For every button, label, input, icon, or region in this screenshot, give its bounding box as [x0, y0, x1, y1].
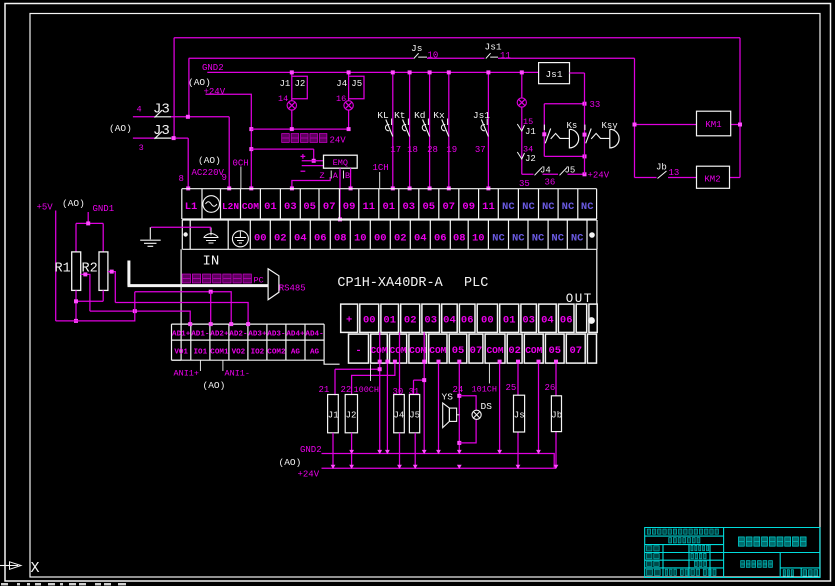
svg-text:+24V: +24V	[204, 87, 226, 97]
svg-text:Kx: Kx	[433, 110, 445, 121]
svg-text:NC: NC	[581, 201, 594, 213]
svg-text:NC: NC	[492, 233, 505, 245]
svg-text:09: 09	[343, 201, 356, 213]
svg-text:00: 00	[254, 233, 267, 245]
svg-text:J5: J5	[351, 79, 362, 89]
svg-text:04: 04	[414, 233, 427, 245]
svg-text:05: 05	[303, 201, 316, 213]
svg-text:AD3-: AD3-	[267, 331, 285, 339]
svg-text:DS: DS	[481, 401, 493, 412]
svg-text:10: 10	[428, 51, 439, 61]
svg-text:26: 26	[545, 383, 556, 393]
svg-text:101CH: 101CH	[472, 385, 498, 395]
svg-text:24: 24	[453, 385, 464, 395]
svg-text:31: 31	[409, 387, 420, 397]
svg-text:AG: AG	[310, 349, 320, 357]
svg-text:14: 14	[278, 94, 288, 104]
svg-text:10: 10	[354, 233, 367, 245]
svg-text:Jb: Jb	[551, 411, 562, 421]
svg-text:L2N: L2N	[222, 201, 239, 212]
svg-text:YS: YS	[442, 392, 454, 403]
svg-text:08: 08	[453, 233, 466, 245]
svg-text:J2: J2	[346, 411, 357, 421]
svg-text:11: 11	[500, 51, 511, 61]
svg-text:9: 9	[222, 173, 227, 183]
svg-text:NC: NC	[532, 233, 545, 245]
svg-text:Ksy: Ksy	[602, 121, 619, 131]
svg-text:35: 35	[519, 179, 530, 189]
svg-text:8: 8	[179, 174, 184, 184]
svg-text:03: 03	[522, 315, 535, 327]
svg-text:3: 3	[139, 143, 144, 153]
svg-text:Js1: Js1	[473, 110, 490, 121]
svg-text:NC: NC	[512, 233, 525, 245]
svg-text:05: 05	[422, 201, 435, 213]
svg-text:ANI1+: ANI1+	[174, 369, 200, 379]
svg-text:21: 21	[319, 385, 330, 395]
svg-text:J5: J5	[565, 166, 576, 176]
svg-text:100CH: 100CH	[354, 385, 380, 395]
svg-text:J4: J4	[394, 411, 405, 421]
svg-text:J1: J1	[280, 79, 291, 89]
svg-text:J5: J5	[409, 411, 420, 421]
svg-text:15: 15	[523, 117, 533, 127]
svg-text:Ks: Ks	[567, 121, 578, 131]
svg-text:COM: COM	[242, 201, 259, 212]
svg-text:01: 01	[382, 201, 395, 213]
svg-text:AD4-: AD4-	[305, 331, 323, 339]
svg-text:IO2: IO2	[251, 349, 265, 357]
svg-text:00: 00	[481, 315, 494, 327]
svg-text:A: A	[333, 171, 339, 181]
svg-text:33: 33	[590, 100, 601, 110]
svg-text:03: 03	[424, 315, 437, 327]
svg-text:03: 03	[284, 201, 297, 213]
svg-text:00: 00	[363, 315, 376, 327]
svg-text:AD2+: AD2+	[210, 331, 229, 339]
svg-text:11: 11	[482, 201, 495, 213]
svg-text:04: 04	[294, 233, 307, 245]
svg-text:AD2-: AD2-	[229, 331, 247, 339]
svg-text:04: 04	[541, 315, 554, 327]
svg-text:NC: NC	[502, 201, 515, 213]
svg-text:01: 01	[503, 315, 516, 327]
svg-text:(AO): (AO)	[62, 198, 85, 209]
svg-text:AD3+: AD3+	[248, 331, 267, 339]
svg-text:28: 28	[427, 145, 438, 155]
svg-text:AG: AG	[291, 349, 301, 357]
svg-text:Z: Z	[320, 171, 325, 181]
svg-text:J3: J3	[153, 123, 170, 139]
svg-text:Js: Js	[514, 411, 525, 421]
svg-text:06: 06	[314, 233, 327, 245]
svg-text:24V: 24V	[330, 136, 347, 146]
svg-text:+24V: +24V	[588, 171, 610, 181]
svg-text:06: 06	[434, 233, 447, 245]
svg-text:COM: COM	[390, 345, 407, 356]
svg-text:+24V: +24V	[298, 470, 320, 480]
svg-text:01: 01	[264, 201, 277, 213]
svg-text:30: 30	[393, 387, 404, 397]
svg-text:IO1: IO1	[194, 349, 208, 357]
svg-text:09: 09	[462, 201, 475, 213]
svg-text:+5V: +5V	[37, 203, 54, 213]
svg-text:18: 18	[407, 145, 418, 155]
svg-text:COM: COM	[429, 345, 446, 356]
svg-text:02: 02	[274, 233, 287, 245]
svg-text:22: 22	[341, 385, 352, 395]
svg-text:COM1: COM1	[210, 349, 229, 357]
svg-text:J1: J1	[328, 411, 339, 421]
svg-text:07: 07	[470, 345, 483, 357]
svg-text:NC: NC	[562, 201, 575, 213]
svg-text:VO1: VO1	[174, 349, 188, 357]
svg-text:AD1-: AD1-	[191, 331, 209, 339]
svg-text:08: 08	[334, 233, 347, 245]
svg-text:07: 07	[442, 201, 455, 213]
svg-text:Kd: Kd	[414, 110, 425, 121]
svg-text:J4: J4	[540, 166, 551, 176]
svg-text:COM2: COM2	[267, 349, 286, 357]
svg-text:NC: NC	[571, 233, 584, 245]
svg-text:L1: L1	[185, 201, 198, 213]
svg-text:RS485: RS485	[279, 284, 306, 294]
svg-text:05: 05	[548, 345, 561, 357]
svg-text:34: 34	[523, 145, 533, 155]
svg-text:J2: J2	[525, 154, 536, 164]
svg-text:J2: J2	[295, 79, 306, 89]
svg-text:Js: Js	[411, 43, 422, 54]
svg-text:17: 17	[390, 145, 401, 155]
svg-text:Jb: Jb	[656, 163, 667, 173]
svg-text:Js1: Js1	[545, 69, 562, 80]
svg-text:19: 19	[446, 145, 457, 155]
svg-text:Kt: Kt	[394, 110, 405, 121]
svg-text:X: X	[31, 560, 40, 577]
svg-text:J4: J4	[336, 79, 347, 89]
svg-text:06: 06	[560, 315, 573, 327]
svg-text:03: 03	[402, 201, 415, 213]
svg-text:EMQ: EMQ	[333, 158, 348, 168]
svg-text:COM: COM	[486, 345, 503, 356]
svg-text:(AO): (AO)	[198, 155, 221, 166]
svg-text:GND2: GND2	[300, 445, 322, 455]
svg-text:06: 06	[461, 315, 474, 327]
svg-text:J1: J1	[525, 127, 536, 137]
svg-text:GND2: GND2	[202, 63, 224, 73]
svg-text:ANI1-: ANI1-	[225, 369, 251, 379]
svg-text:05: 05	[452, 345, 465, 357]
svg-text:PC: PC	[254, 276, 264, 286]
svg-text:IN: IN	[203, 254, 220, 270]
svg-text:-: -	[355, 345, 361, 357]
svg-text:11: 11	[362, 201, 375, 213]
svg-text:02: 02	[404, 315, 417, 327]
svg-text:PLC: PLC	[464, 276, 488, 291]
svg-text:AD4+: AD4+	[286, 331, 305, 339]
svg-text:KM1: KM1	[705, 120, 721, 130]
svg-text:1CH: 1CH	[373, 163, 389, 173]
svg-text:07: 07	[569, 345, 582, 357]
svg-text:VO2: VO2	[232, 349, 246, 357]
svg-text:02: 02	[394, 233, 407, 245]
svg-text:36: 36	[545, 178, 556, 188]
svg-text:13: 13	[669, 168, 680, 178]
svg-text:00: 00	[374, 233, 387, 245]
svg-text:02: 02	[508, 345, 521, 357]
svg-text:B: B	[345, 171, 350, 181]
svg-text:NC: NC	[522, 201, 535, 213]
svg-text:10: 10	[472, 233, 485, 245]
svg-text:J3: J3	[153, 102, 170, 118]
svg-text:37: 37	[475, 145, 486, 155]
svg-text:KM2: KM2	[704, 175, 720, 185]
svg-text:AC220V: AC220V	[192, 168, 225, 178]
svg-text:KL: KL	[377, 110, 389, 121]
svg-text:(AO): (AO)	[203, 380, 226, 391]
svg-text:COM: COM	[525, 345, 542, 356]
svg-text:01: 01	[383, 315, 396, 327]
svg-text:4: 4	[137, 105, 142, 115]
svg-text:R1: R1	[55, 262, 71, 277]
svg-text:07: 07	[323, 201, 336, 213]
svg-text:(AO): (AO)	[109, 123, 132, 134]
svg-text:04: 04	[443, 315, 456, 327]
svg-text:+: +	[346, 315, 352, 327]
svg-text:CP1H-XA40DR-A: CP1H-XA40DR-A	[337, 276, 443, 291]
svg-text:25: 25	[506, 383, 517, 393]
svg-text:NC: NC	[542, 201, 555, 213]
svg-text:NC: NC	[551, 233, 564, 245]
svg-text:AD1+: AD1+	[172, 331, 191, 339]
svg-text:GND1: GND1	[93, 204, 115, 214]
svg-text:(AO): (AO)	[279, 457, 302, 468]
